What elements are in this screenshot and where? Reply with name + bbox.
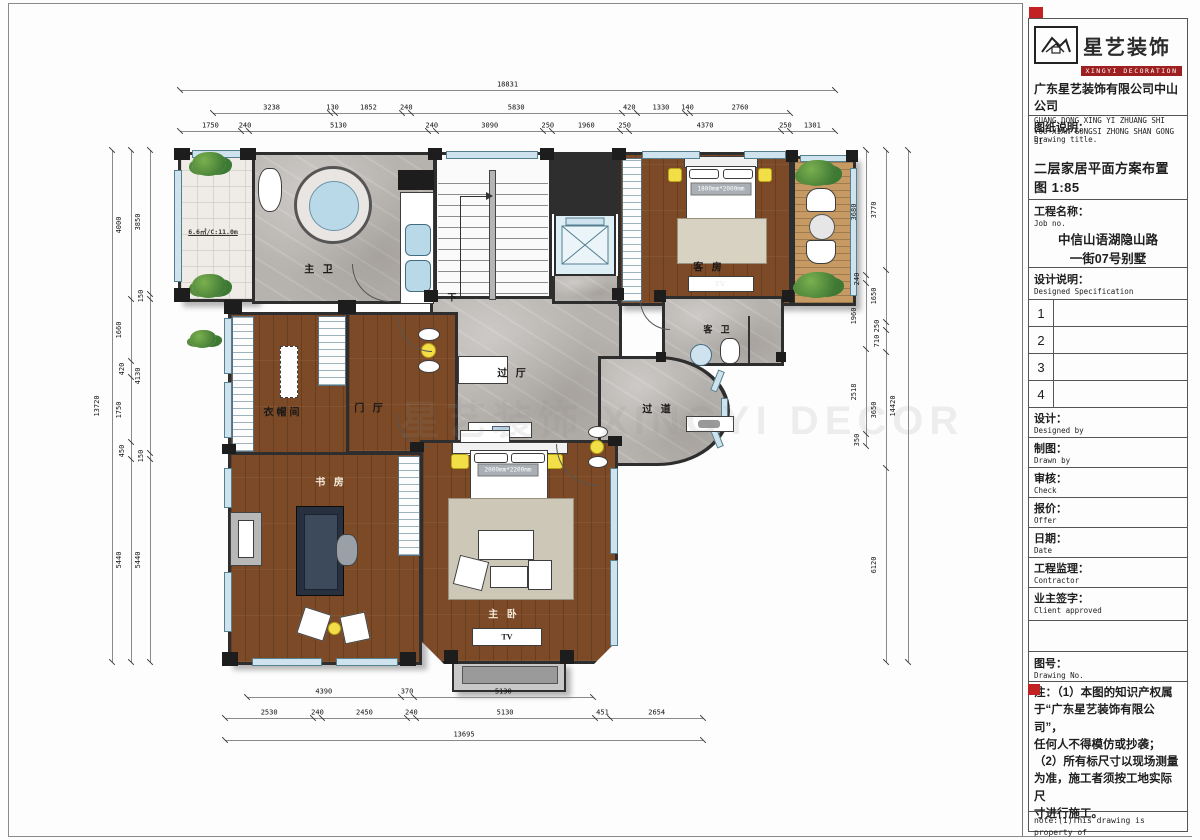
pillar — [174, 288, 190, 302]
hall-connector — [552, 276, 620, 304]
field-date: 日期： Date — [1029, 528, 1187, 558]
dim-label: 1750 — [115, 401, 123, 418]
drawing-sheet: 主 卫 客 房 TV 客 卫 过 厅 过 道 衣帽间 门 厅 书 房 主 卧 T… — [0, 0, 1200, 840]
guest-window-top-2 — [744, 151, 786, 159]
guest-bed-light-right — [758, 168, 772, 182]
dim-line — [213, 113, 790, 114]
toilet-master — [258, 168, 282, 212]
spec-row-4: 4 — [1029, 381, 1187, 408]
pillar — [608, 436, 622, 446]
dim-label: 250 — [873, 319, 881, 332]
label-study: 书 房 — [315, 474, 347, 489]
label-guest-bath: 客 卫 — [703, 323, 732, 336]
vase-2 — [418, 360, 440, 373]
dim-label: 4370 — [697, 121, 714, 129]
spec-row-number: 3 — [1029, 354, 1054, 380]
pillar — [240, 148, 256, 160]
master-loveseat — [478, 530, 534, 560]
dim-label: 2760 — [732, 103, 749, 111]
drawing-title-label-cn: 图纸说明： — [1034, 119, 1182, 135]
red-stamp-top — [1029, 7, 1043, 18]
dim-line — [180, 131, 835, 132]
pillar — [612, 148, 626, 160]
dim-label: 370 — [401, 687, 414, 695]
dim-label: 1660 — [115, 322, 123, 339]
dim-label: 1960 — [578, 121, 595, 129]
dim-label: 5130 — [497, 708, 514, 716]
master-pillow-2 — [511, 453, 545, 463]
dim-label: 13695 — [453, 730, 474, 738]
dim-label: 6120 — [870, 557, 878, 574]
elevator-shaft-wall — [552, 152, 620, 214]
guest-bed-light-left — [668, 168, 682, 182]
dim-label: 3650 — [870, 402, 878, 419]
pillar — [612, 288, 624, 300]
title-block: 星艺装饰 XINGYI DECORATION 广东星艺装饰有限公司中山公司 GU… — [1022, 3, 1194, 836]
guest-pillow-2 — [723, 169, 753, 179]
dim-label: 240 — [239, 121, 252, 129]
field-check: 审核： Check — [1029, 468, 1187, 498]
study-window-bottom-1 — [252, 658, 322, 666]
lounge-chair-2 — [806, 240, 836, 264]
dim-label: 4390 — [315, 687, 332, 695]
pillar — [224, 300, 242, 314]
sink-1 — [405, 224, 431, 256]
tb-drawing-title-section: 图纸说明： Drawing title. 二层家居平面方案布置图 1:85 — [1029, 116, 1187, 200]
dim-label: 150 — [137, 290, 145, 303]
drawing-title-label-en: Drawing title. — [1034, 135, 1182, 144]
dim-label: 130 — [326, 103, 339, 111]
guest-door-arc — [640, 300, 670, 330]
plant-planter-left — [190, 330, 216, 348]
dim-label: 5830 — [508, 103, 525, 111]
dim-label: 2530 — [261, 708, 278, 716]
dim-label: 5440 — [134, 552, 142, 569]
tb-drawing-no-section: 图号： Drawing No. — [1029, 652, 1187, 682]
field-contractor: 工程监理： Contractor — [1029, 558, 1187, 588]
tb-note-cn-section: 注：（1）本图的知识产权属 于“广东星艺装饰有限公司”， 任何人不得模仿或抄袭；… — [1029, 682, 1187, 812]
dim-label: 14420 — [889, 395, 897, 416]
master-window-right-2 — [610, 560, 618, 646]
dim-label: 240 — [853, 272, 861, 285]
dim-label: 13720 — [93, 395, 101, 416]
elevator-x-icon — [556, 216, 614, 274]
spec-row-number: 4 — [1029, 381, 1054, 407]
spec-label-en: Designed Specification — [1034, 287, 1182, 296]
pillar — [410, 442, 424, 452]
label-foyer: 门 厅 — [354, 400, 386, 415]
label-terrace-area: 6.6㎡/C:11.0m — [188, 226, 238, 236]
dim-label: 5130 — [330, 121, 347, 129]
job-label-en: Job no. — [1034, 219, 1182, 228]
job-address-line1: 中信山语湖隐山路 — [1034, 231, 1182, 250]
master-window-right-1 — [610, 468, 618, 554]
dim-label: 4130 — [134, 368, 142, 385]
note-cn: 注：（1）本图的知识产权属 于“广东星艺装饰有限公司”， 任何人不得模仿或抄袭；… — [1034, 685, 1182, 823]
dim-label: 1301 — [804, 121, 821, 129]
label-stairs-down: 下 — [447, 291, 456, 304]
guest-bath-divider — [748, 316, 750, 364]
dim-line — [131, 150, 132, 662]
dim-label: 3770 — [870, 201, 878, 218]
dim-label: 240 — [311, 708, 324, 716]
study-chair — [336, 534, 358, 566]
dim-line — [225, 740, 703, 741]
dim-label: 2654 — [648, 708, 665, 716]
spec-label-cn: 设计说明： — [1034, 271, 1182, 287]
dim-line — [225, 718, 703, 719]
pillar — [782, 290, 794, 302]
pillar — [786, 150, 798, 162]
dim-label: 150 — [137, 450, 145, 463]
dim-line — [112, 150, 113, 662]
study-lounge-chair-2 — [339, 612, 370, 645]
stair-rail — [489, 170, 496, 300]
label-guest-tv: TV — [714, 280, 725, 289]
label-master-bed-size: 2000mm*2200mm — [478, 464, 539, 477]
dim-label: 250 — [779, 121, 792, 129]
pillar — [540, 148, 554, 160]
dim-label: 350 — [853, 434, 861, 447]
cloak-closet-mid — [318, 316, 346, 386]
dim-label: 240 — [405, 708, 418, 716]
pillar — [444, 650, 458, 664]
terrace-window-left — [174, 170, 182, 282]
dim-label: 1330 — [653, 103, 670, 111]
dim-label: 3680 — [850, 204, 858, 221]
label-cloakroom: 衣帽间 — [264, 404, 303, 419]
field-client-approved: 业主签字： Client approved — [1029, 588, 1187, 621]
tb-job-section: 工程名称： Job no. 中信山语湖隐山路 一街07号别墅 — [1029, 200, 1187, 268]
pillar — [654, 290, 666, 302]
study-side-cabinet-inner — [238, 520, 254, 558]
vase-3 — [588, 426, 608, 438]
sink-2 — [405, 260, 431, 292]
guest-pillow-1 — [689, 169, 719, 179]
guest-rug — [677, 218, 767, 264]
study-yellow-stool — [328, 622, 341, 635]
dim-label: 240 — [426, 121, 439, 129]
job-address-line2: 一街07号别墅 — [1034, 250, 1182, 269]
study-window-left-2 — [224, 572, 232, 632]
label-master-tv: TV — [501, 633, 512, 642]
dim-label: 2518 — [850, 383, 858, 400]
dim-label: 450 — [118, 444, 126, 457]
pillar — [222, 444, 236, 454]
label-guest-room: 客 房 — [693, 259, 725, 274]
logo-text-cn: 星艺装饰 — [1083, 31, 1171, 60]
cloak-window-1 — [224, 318, 232, 374]
study-window-left-1 — [224, 468, 232, 508]
floor-plan: 主 卫 客 房 TV 客 卫 过 厅 过 道 衣帽间 门 厅 书 房 主 卧 T… — [0, 0, 1022, 840]
job-label-cn: 工程名称： — [1034, 203, 1182, 219]
dim-label: 3090 — [481, 121, 498, 129]
label-master-bath: 主 卫 — [304, 261, 336, 276]
master-chair-2 — [528, 560, 552, 590]
dim-label: 710 — [873, 335, 881, 348]
cloak-window-2 — [224, 382, 232, 438]
dim-label: 3238 — [263, 103, 280, 111]
pillar — [222, 652, 238, 666]
company-logo-icon — [1034, 26, 1078, 64]
dim-label: 420 — [623, 103, 636, 111]
field-drawn-by: 制图： Drawn by — [1029, 438, 1187, 468]
study-desk-top — [304, 514, 338, 590]
spec-row-number: 2 — [1029, 327, 1054, 353]
pillar — [560, 650, 574, 664]
balcony-bottom-floor — [462, 666, 558, 684]
spec-row-number: 1 — [1029, 300, 1054, 326]
label-hall: 过 厅 — [497, 365, 529, 380]
study-bookshelf — [398, 456, 420, 556]
label-corridor: 过 道 — [642, 401, 674, 416]
title-block-box: 星艺装饰 XINGYI DECORATION 广东星艺装饰有限公司中山公司 GU… — [1028, 18, 1188, 832]
dim-label: 250 — [542, 121, 555, 129]
logo-text-en: XINGYI DECORATION — [1081, 66, 1182, 76]
cloak-closet-left — [232, 316, 254, 452]
dim-label: 4000 — [115, 216, 123, 233]
dim-label: 1650 — [870, 287, 878, 304]
guest-wardrobe — [622, 158, 642, 302]
cloak-island — [280, 346, 298, 398]
dim-label: 18831 — [497, 80, 518, 88]
stair-direction-line2 — [460, 196, 486, 197]
label-master-bedroom: 主 卧 — [488, 606, 520, 621]
bathtub-water — [309, 181, 359, 231]
dim-label: 420 — [118, 363, 126, 376]
pillar — [656, 352, 666, 362]
pillar — [776, 352, 786, 362]
dim-label: 140 — [681, 103, 694, 111]
dim-line — [886, 150, 887, 662]
dim-label: 1852 — [360, 103, 377, 111]
pillar — [424, 290, 438, 302]
tb-empty-section — [1029, 621, 1187, 652]
master-bench — [490, 566, 528, 588]
field-offer: 报价： Offer — [1029, 498, 1187, 528]
drawing-no-label-en: Drawing No. — [1034, 671, 1182, 680]
tb-logo-section: 星艺装饰 XINGYI DECORATION 广东星艺装饰有限公司中山公司 GU… — [1029, 19, 1187, 116]
company-name-cn: 广东星艺装饰有限公司中山公司 — [1034, 80, 1182, 114]
spec-row-3: 3 — [1029, 354, 1187, 381]
dim-label: 250 — [618, 121, 631, 129]
study-window-bottom-2 — [336, 658, 398, 666]
dim-line — [150, 150, 151, 662]
guest-window-top-1 — [642, 151, 700, 159]
side-cabinet-object — [698, 420, 720, 428]
pillar — [400, 652, 416, 666]
drawing-title: 二层家居平面方案布置图 1:85 — [1034, 158, 1182, 196]
dim-line — [247, 697, 593, 698]
label-guest-bed-size: 1800mm*2000mm — [691, 183, 752, 196]
dim-line — [908, 150, 909, 662]
pillar — [338, 300, 356, 314]
drawing-no-label-cn: 图号： — [1034, 655, 1182, 671]
spec-row-2: 2 — [1029, 327, 1187, 354]
dim-line — [180, 90, 835, 91]
dim-label: 240 — [400, 103, 413, 111]
dim-label: 1750 — [202, 121, 219, 129]
dim-line — [866, 150, 867, 446]
toilet-guest — [720, 338, 740, 364]
dim-label: 3850 — [134, 213, 142, 230]
lounge-chair-1 — [806, 188, 836, 212]
spec-row-1: 1 — [1029, 300, 1187, 327]
dim-label: 2450 — [356, 708, 373, 716]
master-pillow-1 — [474, 453, 508, 463]
pillar — [846, 150, 858, 162]
tb-spec-section: 设计说明： Designed Specification — [1029, 268, 1187, 300]
stair-arrow-icon — [486, 192, 493, 200]
red-stamp-bottom — [1028, 684, 1040, 695]
dim-label: 1960 — [850, 307, 858, 324]
stair-direction-line — [460, 196, 461, 296]
field-designed-by: 设计： Designed by — [1029, 408, 1187, 438]
stairs-window-top — [446, 151, 538, 159]
dim-label: 451 — [596, 708, 609, 716]
balcony-table — [809, 214, 835, 240]
dim-label: 5130 — [495, 687, 512, 695]
pillar — [428, 148, 442, 160]
dim-label: 5440 — [115, 552, 123, 569]
pillar — [174, 148, 190, 160]
master-bed-light-left — [451, 454, 469, 469]
elevator — [554, 214, 616, 276]
bath-cabinet — [398, 170, 434, 190]
guest-sink — [690, 344, 712, 366]
